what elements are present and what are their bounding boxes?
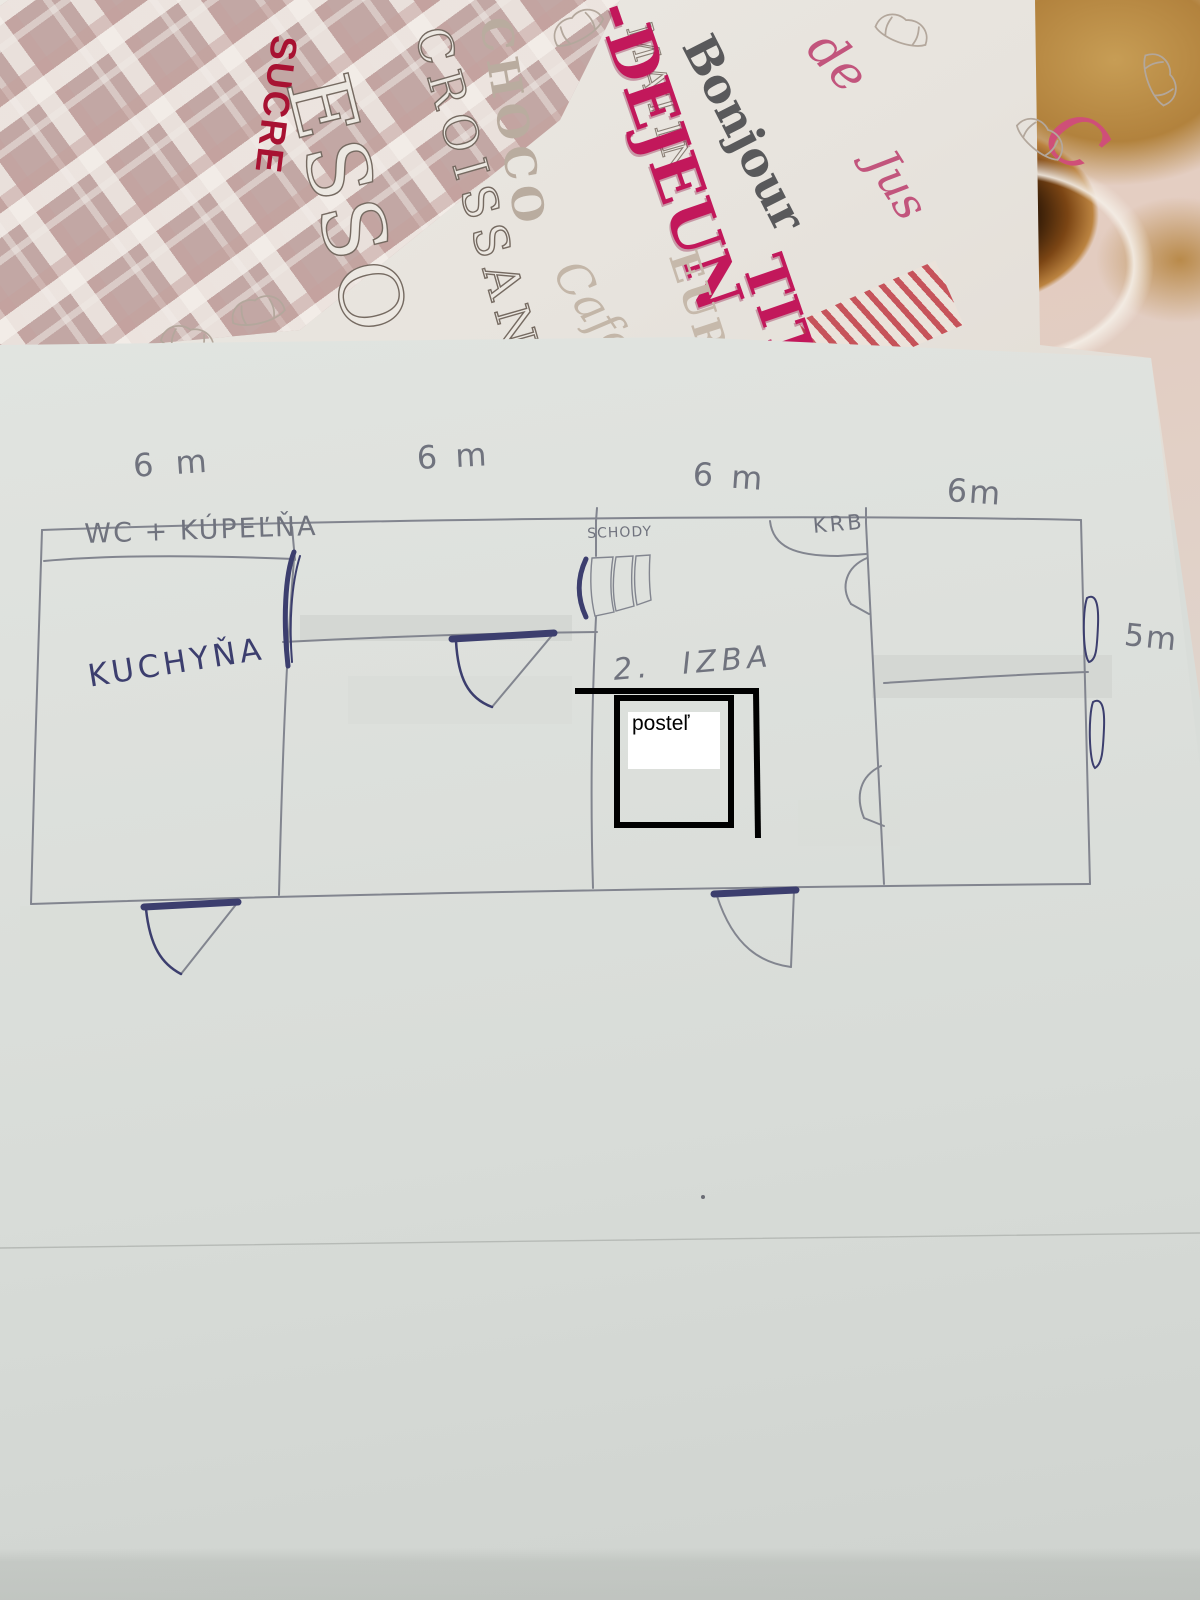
bed-overlay-drawing bbox=[0, 0, 1200, 1600]
photo-of-floorplan-sketch: SUCRE ESSO CROISSANT CHOCO MATIN -DEJEUN… bbox=[0, 0, 1200, 1600]
bed-label: posteľ bbox=[632, 712, 690, 736]
